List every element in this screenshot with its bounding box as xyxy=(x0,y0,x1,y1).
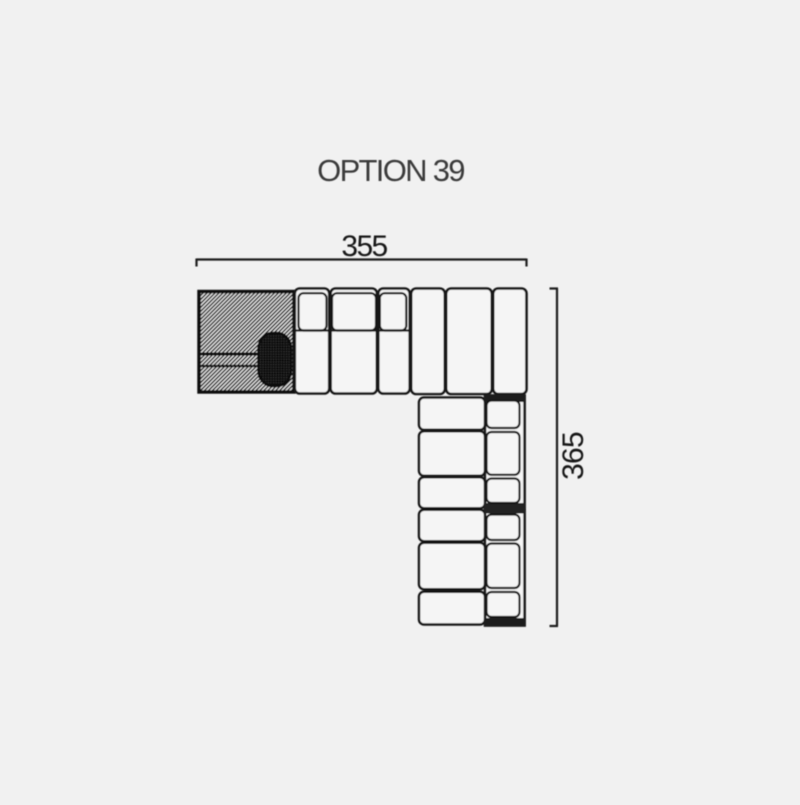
svg-text:365: 365 xyxy=(557,432,590,480)
svg-text:355: 355 xyxy=(341,230,387,263)
svg-text:OPTION 39: OPTION 39 xyxy=(317,153,464,188)
